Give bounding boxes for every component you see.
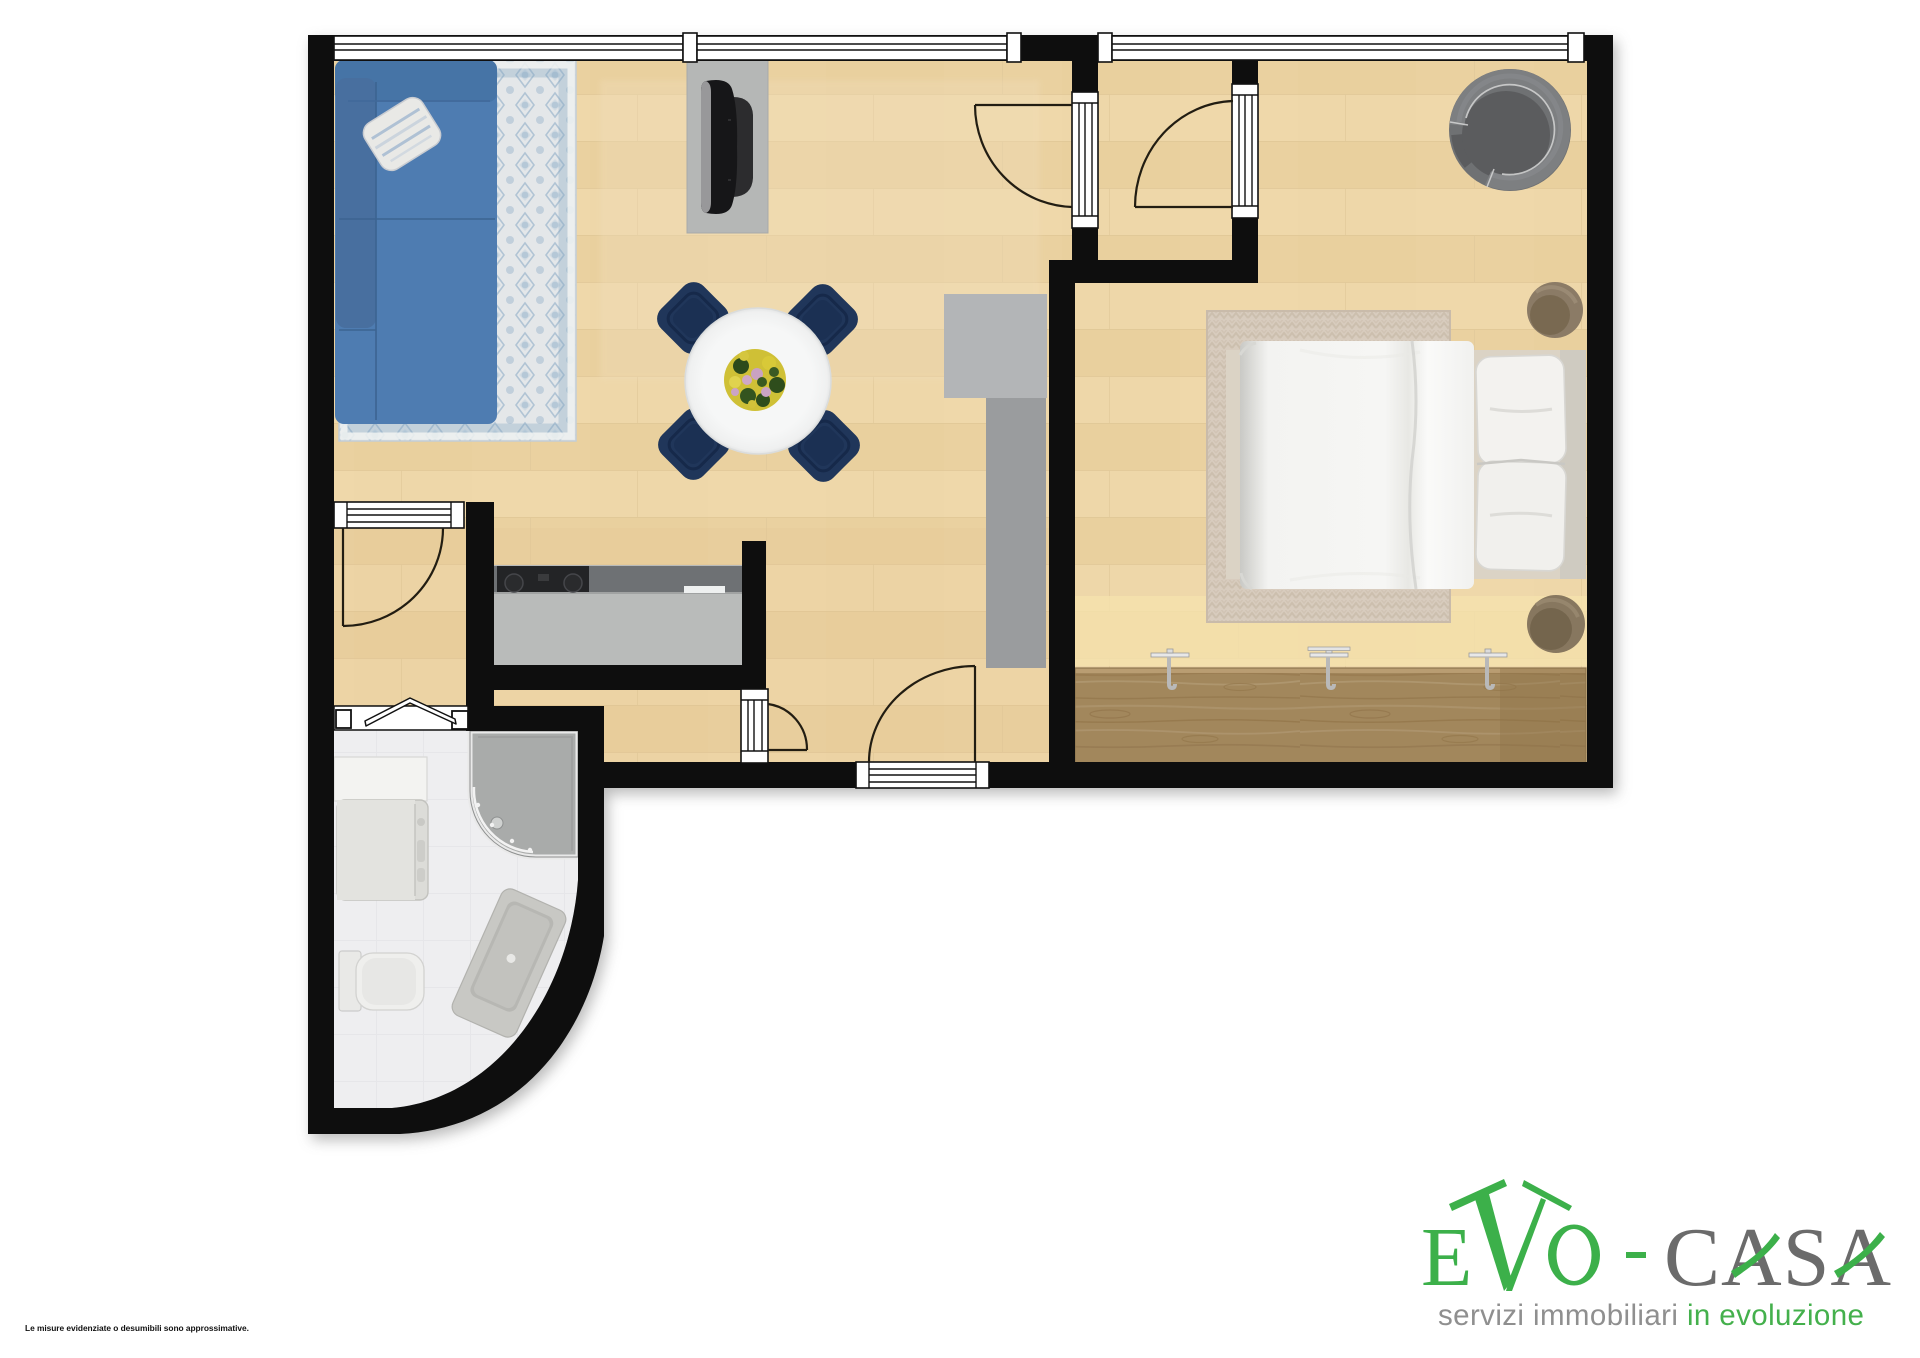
svg-text:E: E	[1421, 1211, 1472, 1304]
svg-text:servizi immobiliari in evoluzi: servizi immobiliari in evoluzione	[1438, 1299, 1864, 1332]
svg-text:Le misure evidenziate o desumi: Le misure evidenziate o desumibili sono …	[25, 1323, 249, 1333]
